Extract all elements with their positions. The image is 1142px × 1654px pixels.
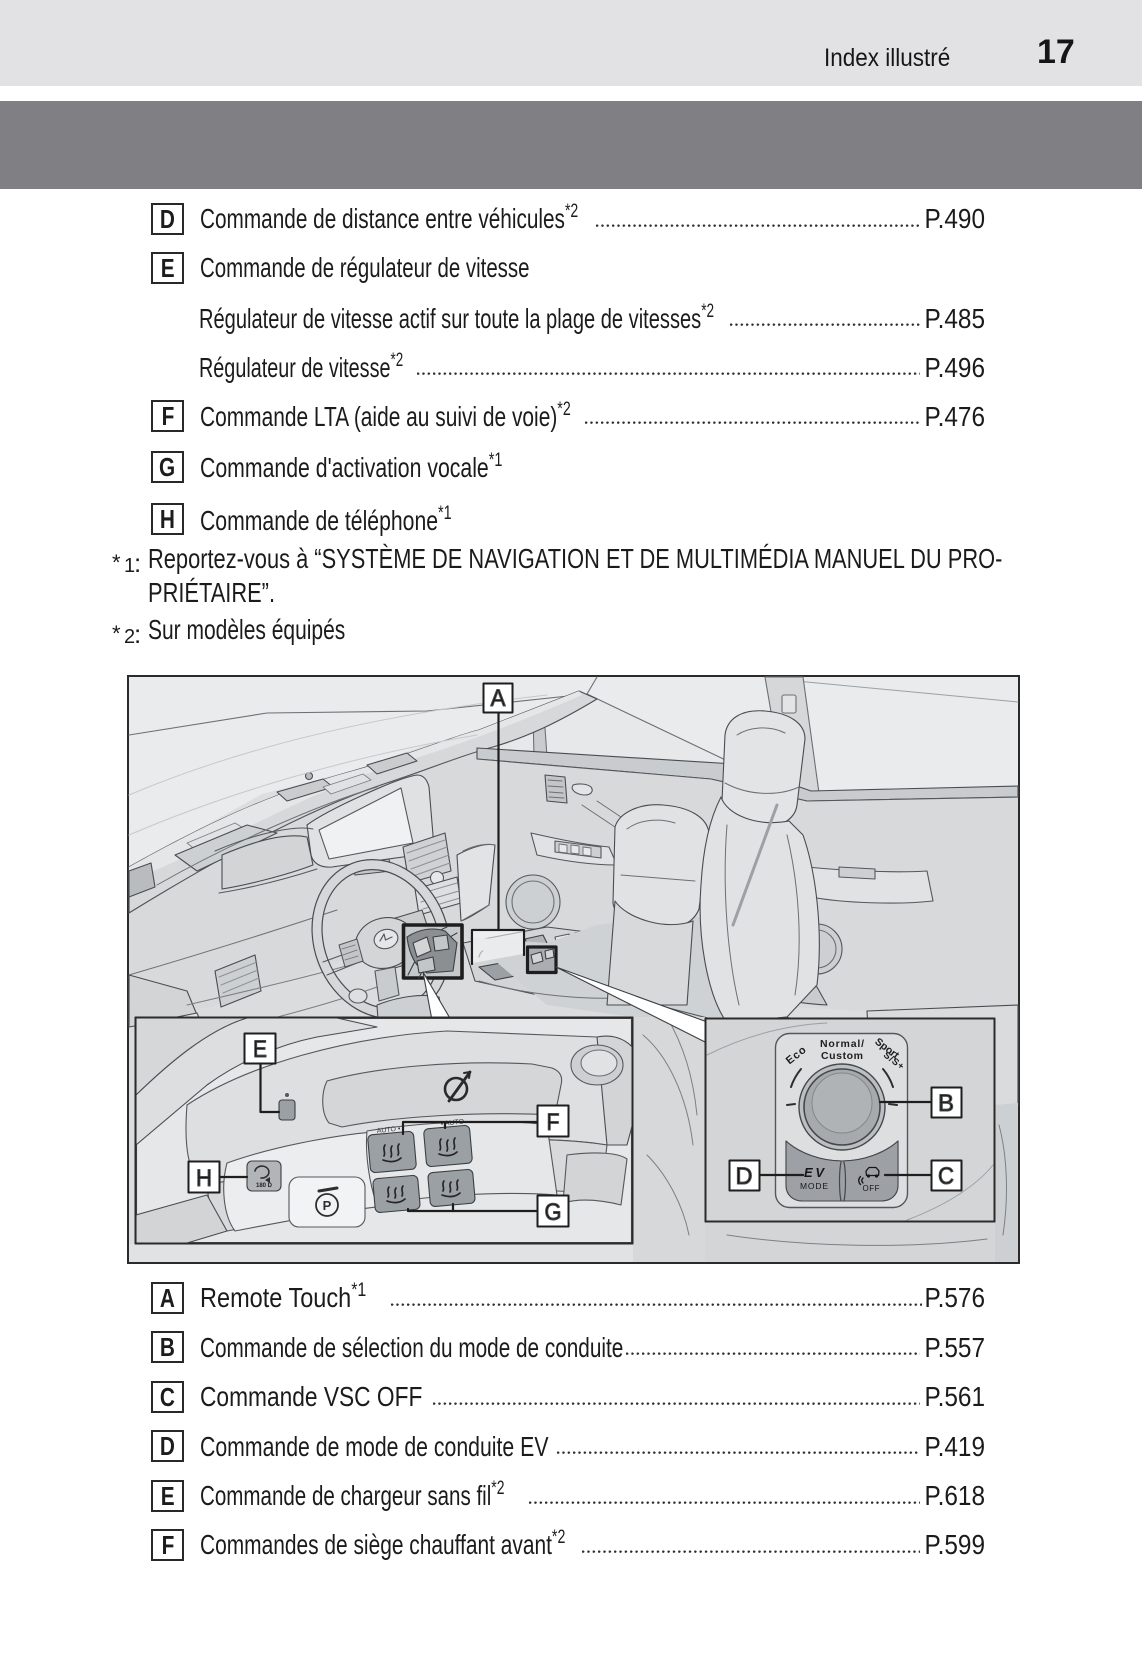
svg-text:MODE: MODE [800,1181,828,1191]
svg-text:C: C [938,1163,954,1190]
svg-text:180 D: 180 D [256,1183,273,1189]
svg-text:A: A [491,685,506,712]
svg-text:E: E [253,1036,267,1063]
svg-text:B: B [938,1090,954,1117]
svg-text:F: F [547,1109,560,1136]
svg-text:EV: EV [804,1165,825,1180]
svg-text:G: G [545,1199,562,1226]
svg-text:Custom: Custom [821,1050,863,1062]
svg-text:D: D [736,1163,753,1190]
svg-text:OFF: OFF [863,1184,880,1193]
svg-text:P: P [323,1198,332,1213]
svg-text:H: H [196,1165,212,1192]
svg-text:Normal/: Normal/ [820,1038,864,1050]
